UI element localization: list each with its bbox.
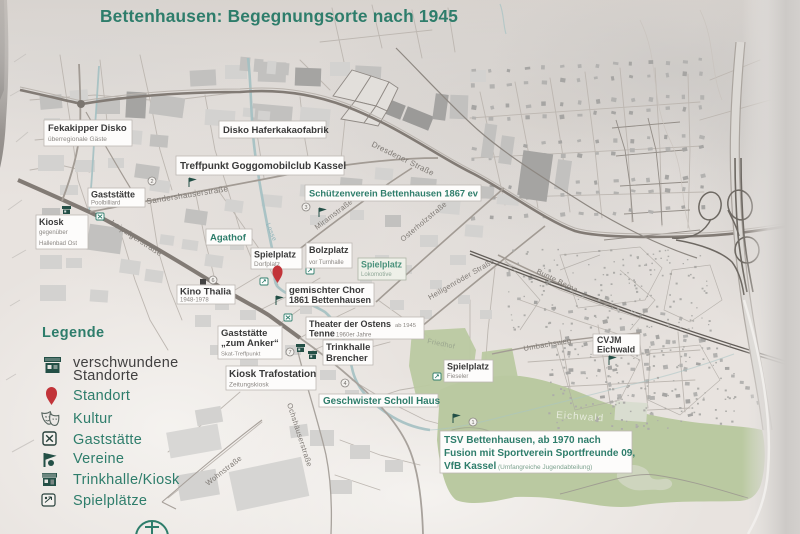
svg-text:überregionale Gäste: überregionale Gäste	[48, 136, 107, 143]
svg-text:3: 3	[304, 205, 307, 211]
svg-text:Lokomotive: Lokomotive	[361, 272, 392, 278]
svg-text:Kiosk: Kiosk	[39, 217, 65, 227]
svg-text:Treffpunkt Goggomobilclub Kass: Treffpunkt Goggomobilclub Kassel	[180, 161, 346, 172]
svg-text:Theater der Ostens: Theater der Ostens	[309, 319, 391, 329]
svg-text:Spielplatz: Spielplatz	[447, 362, 490, 372]
svg-text:Legende: Legende	[42, 325, 104, 341]
svg-text:1861 Bettenhausen: 1861 Bettenhausen	[289, 295, 371, 305]
svg-text:Bolzplatz: Bolzplatz	[309, 245, 349, 255]
svg-text:1: 1	[471, 420, 474, 426]
svg-text:1948-1978: 1948-1978	[180, 298, 209, 304]
svg-text:Fekakipper Disko: Fekakipper Disko	[48, 123, 127, 134]
svg-text:VfB Kassel: VfB Kassel	[444, 461, 496, 472]
svg-text:Skat-Treffpunkt: Skat-Treffpunkt	[221, 352, 261, 358]
svg-text:Standort: Standort	[73, 388, 130, 404]
svg-text:Tenne: Tenne	[309, 329, 335, 339]
svg-text:vor Turnhalle: vor Turnhalle	[309, 260, 344, 266]
svg-text:CVJM: CVJM	[597, 335, 621, 345]
svg-text:Kino Thalia: Kino Thalia	[180, 287, 232, 298]
svg-text:Brencher: Brencher	[326, 353, 368, 364]
svg-text:Eichwald: Eichwald	[597, 345, 635, 355]
svg-text:Geschwister Scholl Haus: Geschwister Scholl Haus	[323, 396, 441, 407]
svg-text:2: 2	[150, 179, 153, 185]
svg-text:Schützenverein Bettenhausen 18: Schützenverein Bettenhausen 1867 ev	[309, 189, 479, 199]
svg-text:ab 1945: ab 1945	[395, 323, 416, 329]
svg-text:Disko Haferkakaofabrik: Disko Haferkakaofabrik	[223, 125, 329, 136]
svg-text:Agathof: Agathof	[210, 233, 247, 244]
svg-text:Fieseler: Fieseler	[447, 374, 468, 380]
svg-text:7: 7	[288, 350, 291, 356]
svg-text:Trinkhalle/Kiosk: Trinkhalle/Kiosk	[73, 472, 180, 488]
svg-text:Vereine: Vereine	[73, 451, 124, 467]
svg-text:4: 4	[343, 381, 346, 387]
svg-text:Standorte: Standorte	[73, 368, 139, 384]
svg-text:(Umfangreiche Jugendabteilung): (Umfangreiche Jugendabteilung)	[498, 464, 592, 471]
svg-text:Spielplatz: Spielplatz	[254, 250, 297, 260]
svg-text:6: 6	[211, 278, 214, 284]
svg-text:Spielplätze: Spielplätze	[73, 493, 147, 509]
svg-text:Kultur: Kultur	[73, 411, 113, 427]
svg-text:Trinkhalle: Trinkhalle	[326, 342, 370, 353]
svg-text:gegenüber: gegenüber	[39, 230, 68, 236]
svg-text:„zum Anker“: „zum Anker“	[221, 338, 279, 349]
svg-text:1960er Jahre: 1960er Jahre	[336, 333, 372, 339]
svg-text:TSV Bettenhausen, ab 1970 nach: TSV Bettenhausen, ab 1970 nach	[444, 435, 601, 446]
svg-text:Spielplatz: Spielplatz	[361, 260, 403, 270]
svg-text:Poolbilliard: Poolbilliard	[91, 201, 120, 207]
svg-text:Hallenbad Ost: Hallenbad Ost	[39, 241, 77, 247]
svg-text:Zeitungskiosk: Zeitungskiosk	[229, 382, 269, 389]
svg-text:Bettenhausen: Begegnungsorte n: Bettenhausen: Begegnungsorte nach 1945	[100, 6, 458, 26]
svg-text:Kiosk Trafostation: Kiosk Trafostation	[229, 369, 316, 380]
svg-text:Gaststätte: Gaststätte	[73, 432, 142, 448]
svg-text:Gaststätte: Gaststätte	[91, 190, 135, 200]
svg-text:Fusion mit Sportverein Sportfr: Fusion mit Sportverein Sportfreunde 09,	[444, 448, 635, 459]
